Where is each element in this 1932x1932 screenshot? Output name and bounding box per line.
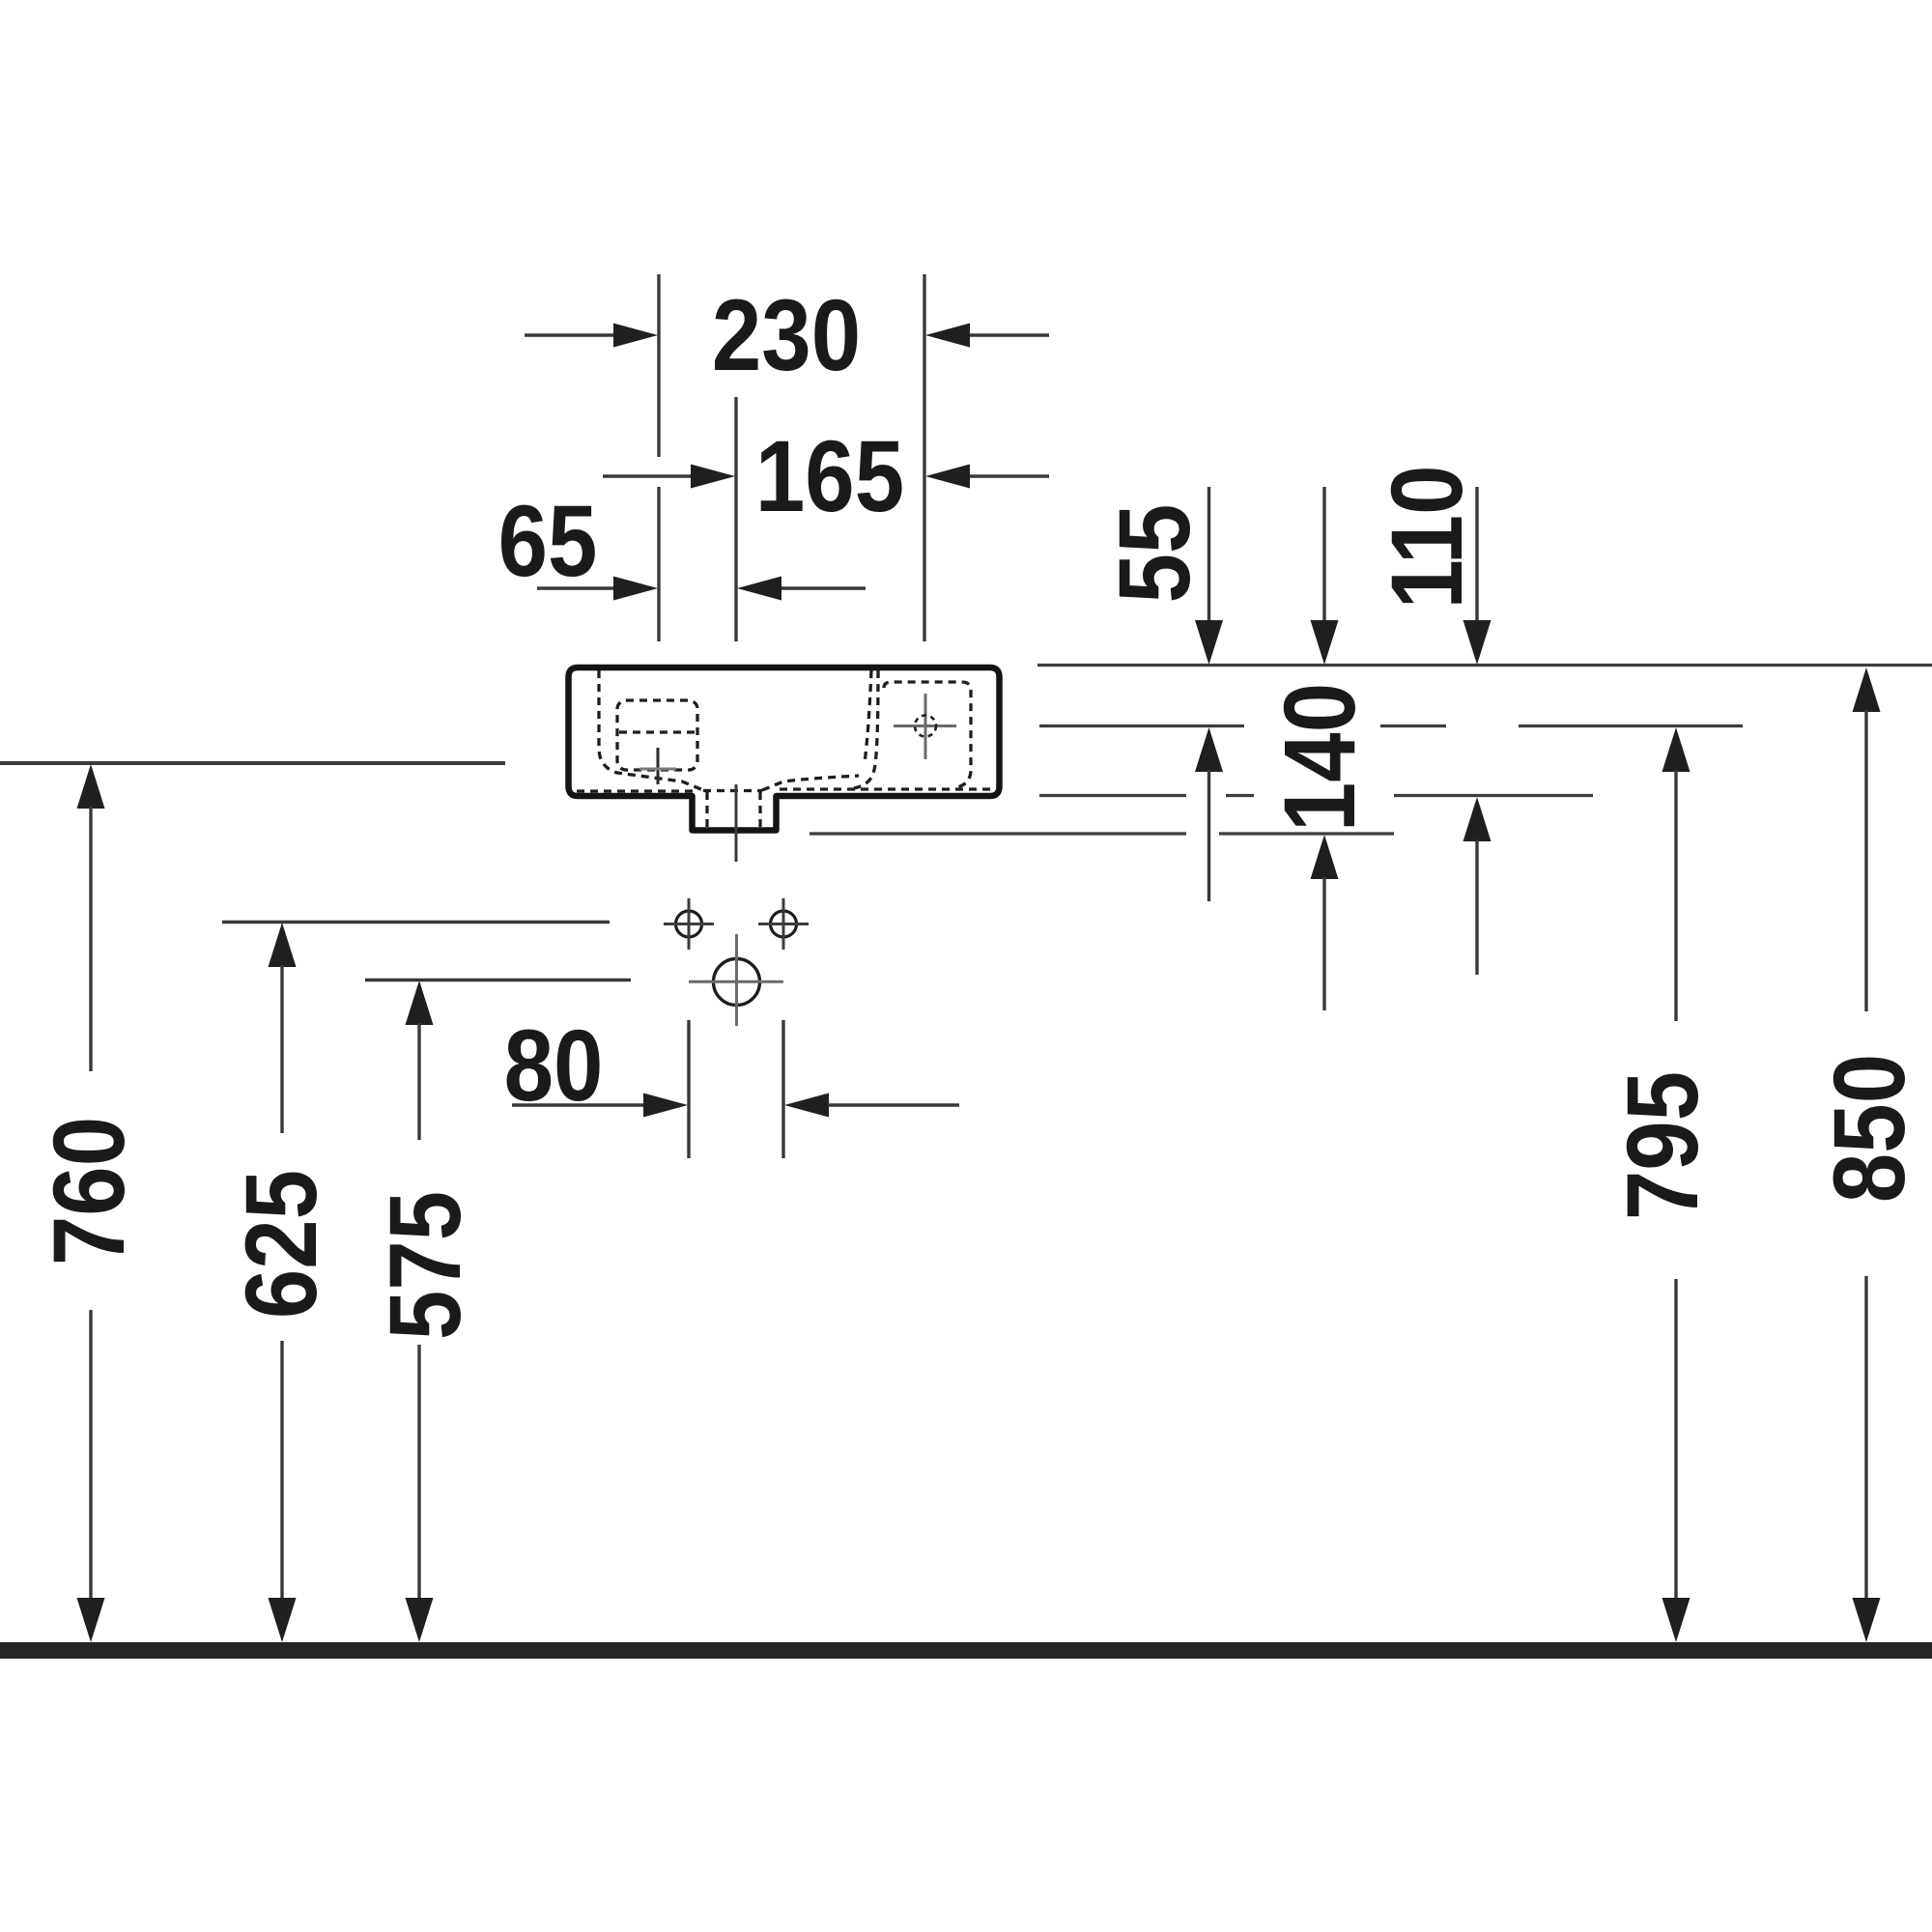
svg-text:65: 65 xyxy=(498,483,598,597)
svg-text:760: 760 xyxy=(31,1117,145,1265)
svg-text:140: 140 xyxy=(1262,683,1376,832)
svg-text:795: 795 xyxy=(1605,1071,1719,1220)
svg-text:850: 850 xyxy=(1811,1054,1925,1203)
svg-text:110: 110 xyxy=(1369,465,1483,609)
svg-text:230: 230 xyxy=(712,277,861,391)
svg-text:575: 575 xyxy=(367,1191,481,1340)
svg-text:625: 625 xyxy=(223,1170,337,1319)
svg-text:55: 55 xyxy=(1096,504,1210,604)
svg-text:165: 165 xyxy=(755,418,904,532)
svg-text:80: 80 xyxy=(504,1008,604,1122)
